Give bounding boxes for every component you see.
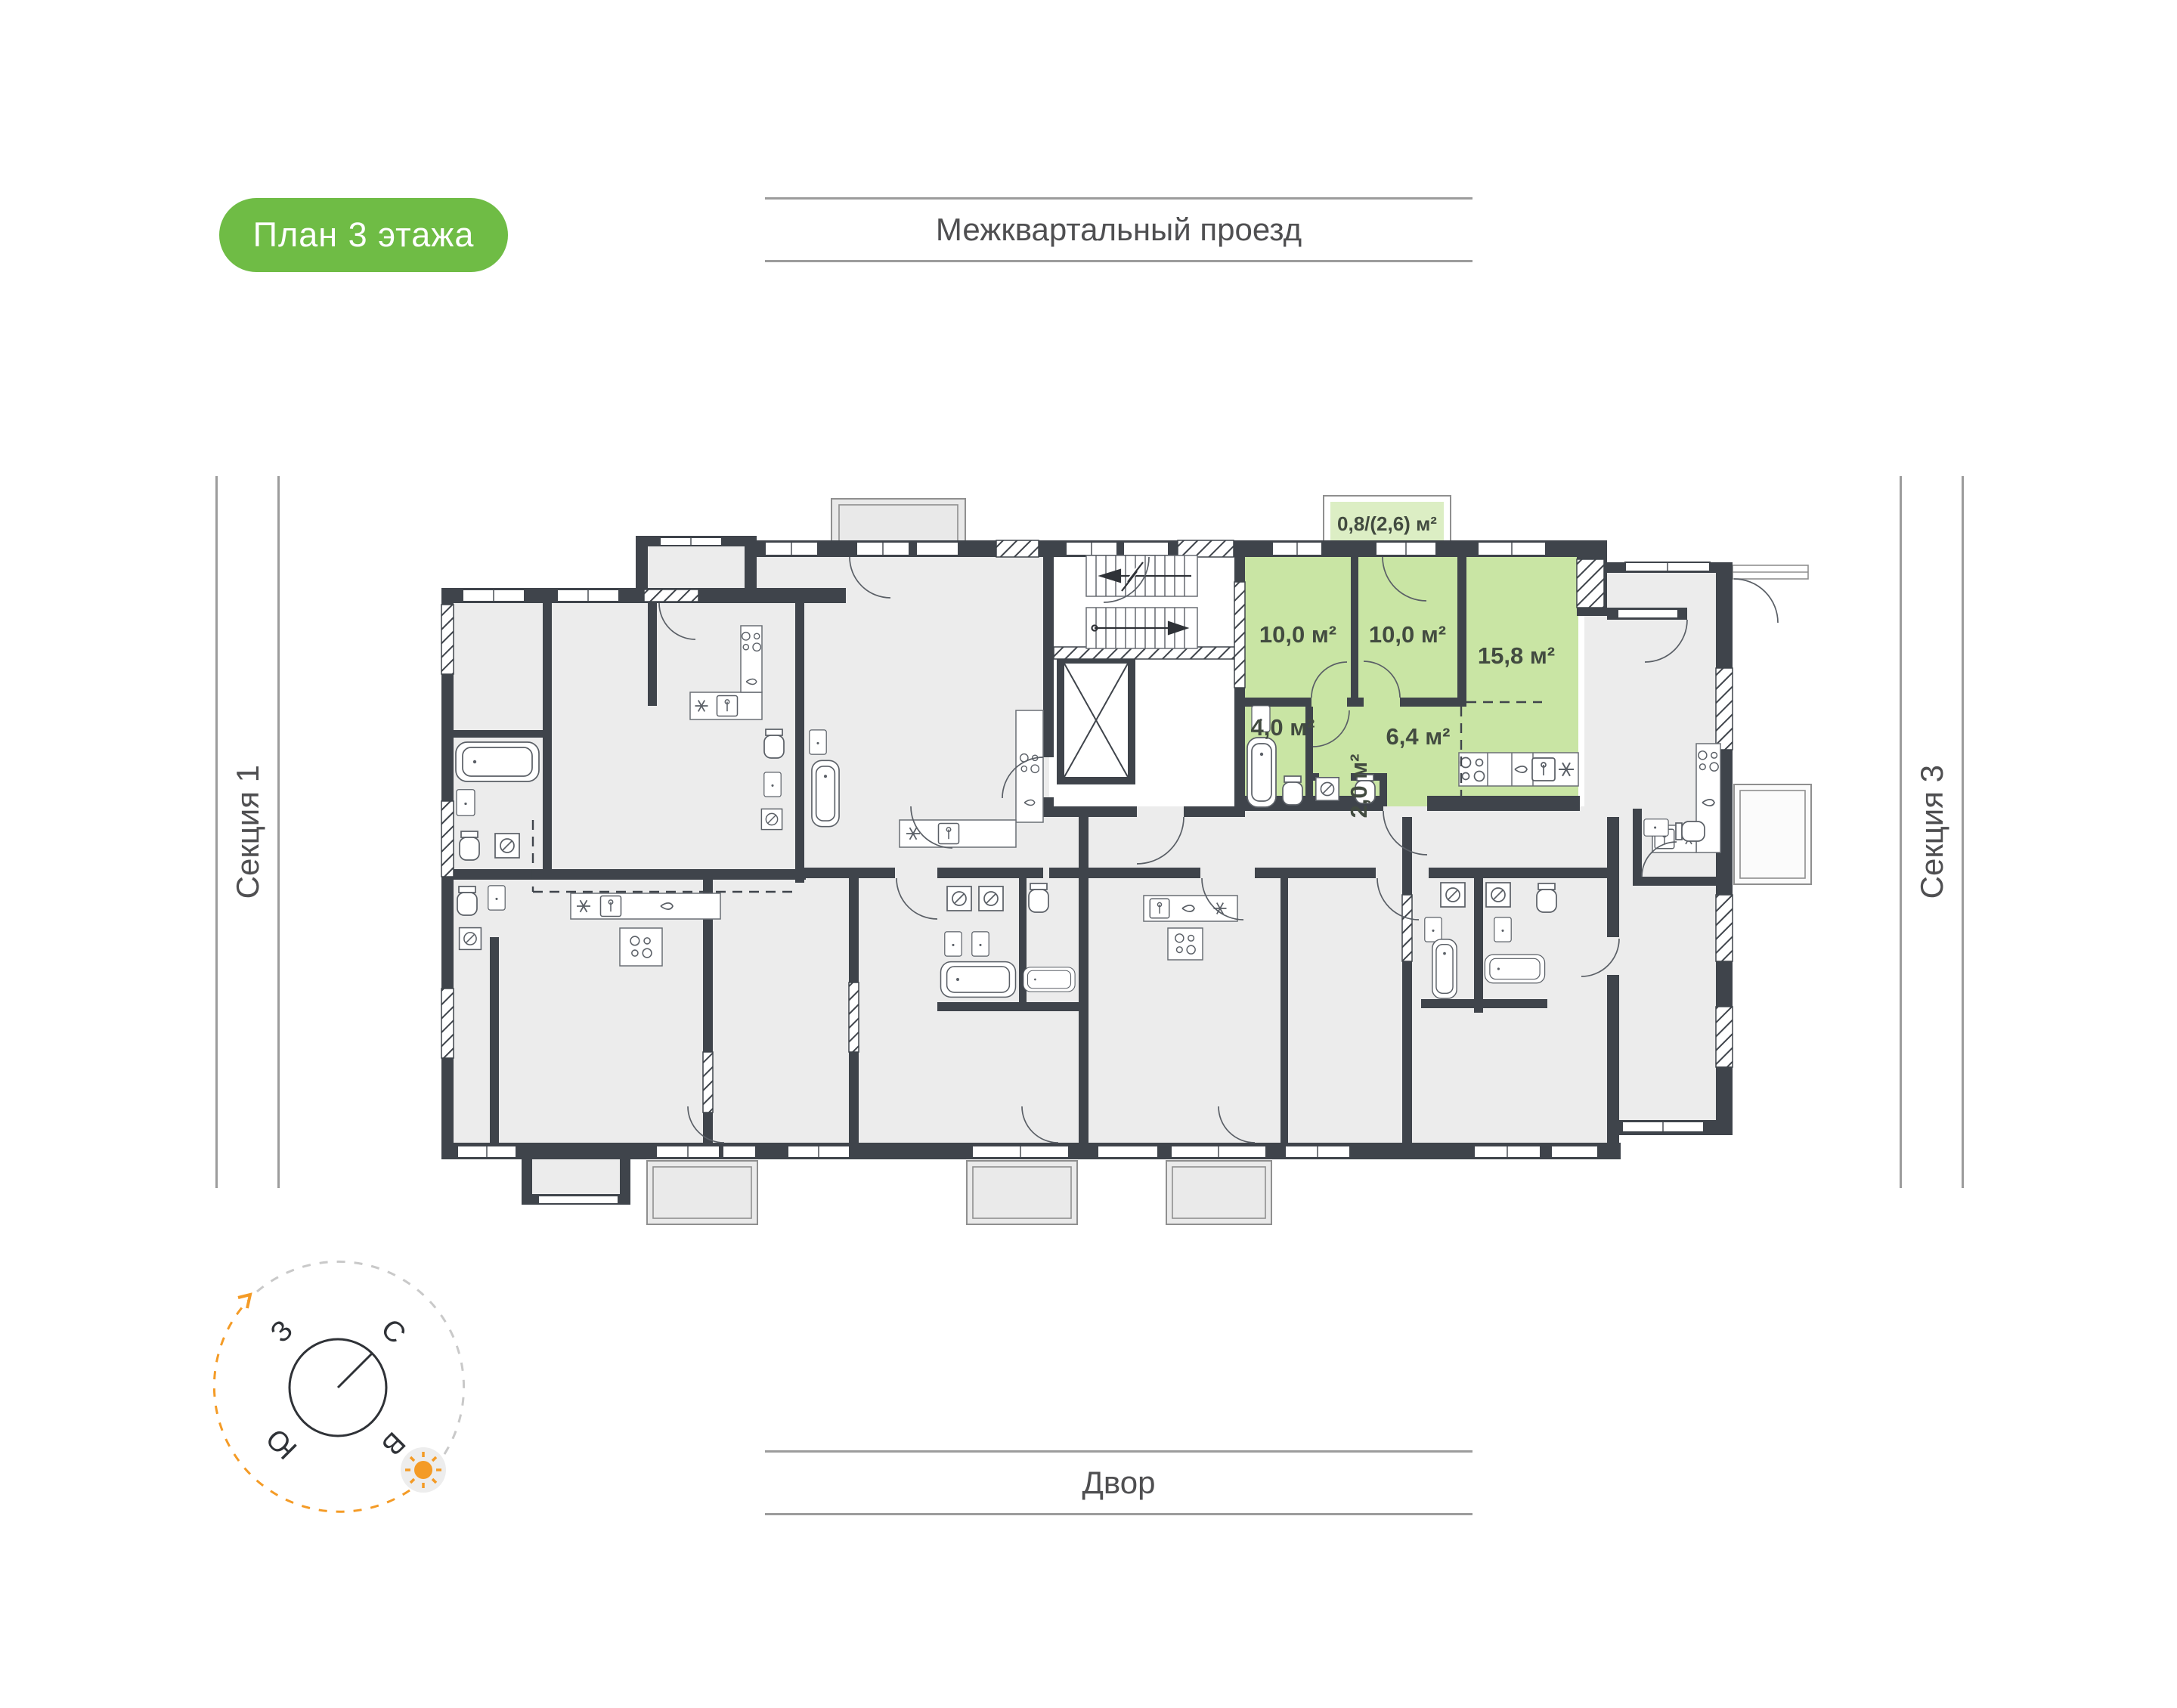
street-label-top: Межквартальный проезд (765, 197, 1472, 262)
bathtub-icon (1247, 738, 1276, 807)
yard-label-bottom: Двор (765, 1450, 1472, 1515)
toilet-icon (1283, 776, 1302, 805)
section-label-right-text: Секция 3 (1914, 765, 1950, 899)
section-label-left: Секция 1 (215, 476, 280, 1188)
compass-west-label: З (265, 1314, 299, 1349)
room-area-bedroom-1: 10,0 м² (1259, 621, 1336, 648)
room-area-bathroom: 4,0 м² (1251, 714, 1315, 741)
floor-plan-badge-label: План 3 этажа (253, 215, 475, 255)
room-area-hallway: 6,4 м² (1386, 723, 1451, 750)
balcony-right (1734, 784, 1811, 884)
balcony-bottom-1 (647, 1161, 757, 1224)
compass: С В Ю З (200, 1251, 488, 1538)
balcony-bottom-2 (967, 1161, 1077, 1224)
compass-south-label: Ю (261, 1422, 304, 1465)
page: { "badge": { "label": "План 3 этажа", "b… (0, 0, 2177, 1708)
room-area-bedroom-2: 10,0 м² (1369, 621, 1446, 648)
washer-icon (1316, 778, 1339, 800)
balcony-area-label: 0,8/(2,6) м² (1337, 512, 1437, 535)
section-label-left-text: Секция 1 (230, 765, 266, 899)
yard-label-bottom-text: Двор (1082, 1465, 1155, 1501)
balcony-bottom-3 (1166, 1161, 1271, 1224)
floor-plan-badge: План 3 этажа (219, 198, 508, 272)
room-area-wc: 2,0 м² (1346, 754, 1372, 818)
room-area-kitchen-living: 15,8 м² (1478, 642, 1555, 669)
section-label-right: Секция 3 (1900, 476, 1964, 1188)
sun-icon (401, 1447, 446, 1493)
arrow-head-icon (238, 1295, 250, 1308)
sink-icon (1532, 758, 1555, 781)
street-label-top-text: Межквартальный проезд (936, 212, 1302, 248)
compass-north-label: С (374, 1313, 411, 1350)
